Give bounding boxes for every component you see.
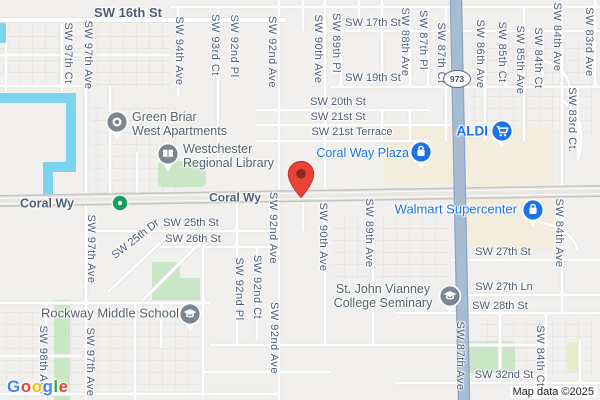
street-label-sw-93rd-ct: SW 93rd Ct	[208, 14, 220, 76]
poi-label-line: Westchester	[183, 142, 274, 156]
route-973-number: 973	[450, 74, 464, 84]
poi-label-line: Coral Way Plaza	[316, 146, 409, 160]
google-logo-letter: e	[59, 377, 69, 396]
street-label-sw-84th-ct: SW 84th Ct	[531, 27, 543, 88]
street-label-sw-85th-ave: SW 85th Ave	[513, 26, 525, 95]
street-label-sw-92nd-ct: SW 92nd Ct	[250, 255, 262, 319]
red-pin-icon	[287, 160, 315, 199]
poi-pin-westchester-regional-library[interactable]	[156, 142, 180, 177]
poi-label-st-john-vianney-college-seminary[interactable]: St. John VianneyCollege Seminary	[334, 282, 433, 310]
poi-label-walmart-supercenter[interactable]: Walmart Supercenter	[395, 203, 517, 218]
google-logo-letter: o	[32, 377, 43, 396]
poi-pin-walmart-supercenter[interactable]	[521, 198, 545, 233]
street-label-sw-20th-st: SW 20th St	[310, 97, 366, 109]
street-label-sw-97th-ave: SW 97th Ave	[83, 328, 95, 397]
poi-label-line: College Seminary	[334, 296, 433, 310]
street-label-sw-92nd-ave: SW 92nd Ave	[265, 16, 277, 88]
street-label-sw-87th-pl: SW 87th Pl	[416, 10, 428, 70]
street-label-sw-28th-st: SW 28th St	[472, 301, 528, 313]
grad-icon	[438, 284, 462, 314]
google-logo-letter: G	[7, 377, 21, 396]
poi-label-line: Regional Library	[183, 156, 274, 170]
ring-icon	[105, 110, 129, 140]
poi-label-line: West Apartments	[132, 124, 227, 138]
street-label-sw-19th-st: SW 19th St	[345, 73, 401, 85]
street-label-sw-84th-ct: SW 84th Ct	[533, 325, 545, 386]
poi-label-line: Rockway Middle School	[41, 307, 179, 322]
poi-label-green-briar-west-apartments[interactable]: Green BriarWest Apartments	[132, 110, 227, 138]
poi-pin-coral-way-plaza[interactable]	[409, 140, 433, 175]
poi-label-aldi[interactable]: ALDI	[457, 123, 489, 138]
street-label-sw-27th-st: SW 27th St	[475, 247, 531, 259]
street-label-sw-92nd-ave: SW 92nd Ave	[266, 192, 278, 264]
street-label-sw-83rd-ct-: SW 83rd Ct.	[565, 87, 577, 152]
poi-label-line: Green Briar	[132, 110, 227, 124]
map-attribution: Map data ©2025	[510, 386, 598, 398]
street-label-sw-97th-ave: SW 97th Ave	[81, 21, 93, 90]
bag-icon	[409, 140, 433, 170]
grad-icon	[178, 302, 202, 332]
street-label-sw-97th-ave: SW 97th Ave	[84, 215, 96, 284]
google-logo-letter: o	[21, 377, 32, 396]
street-label-coral-wy: Coral Wy	[209, 192, 261, 205]
map-canvas[interactable]: SW 16th StSW 17th StSW 19th StSW 20th St…	[0, 0, 600, 400]
book-icon	[156, 142, 180, 172]
street-label-sw-83rd-ave: SW 83rd Ave	[582, 7, 594, 77]
poi-pin-aldi[interactable]	[490, 119, 514, 154]
bag-icon	[521, 198, 545, 228]
street-label-sw-25th-st: SW 25th St	[163, 218, 219, 230]
poi-label-westchester-regional-library[interactable]: WestchesterRegional Library	[183, 142, 274, 170]
cart-icon	[490, 119, 514, 149]
street-label-sw-97th-ct: SW 97th Ct	[61, 22, 73, 83]
poi-label-line: Walmart Supercenter	[395, 203, 517, 218]
poi-label-rockway-middle-school[interactable]: Rockway Middle School	[41, 307, 179, 322]
poi-label-line: ALDI	[457, 123, 489, 138]
google-logo[interactable]: Google	[7, 377, 69, 397]
poi-label-line: St. John Vianney	[334, 282, 433, 296]
street-label-sw-92nd-pl: SW 92nd Pl	[227, 14, 239, 77]
poi-pin-green-briar-west-apartments[interactable]	[105, 110, 129, 145]
street-label-sw-92nd-ave: SW 92nd Ave	[267, 302, 279, 374]
street-label-sw-27th-ln: SW 27th Ln	[475, 282, 532, 294]
street-label-sw-87th-ave: SW 87th Ave	[453, 322, 465, 391]
street-label-sw-89th-ave: SW 89th Ave	[362, 199, 374, 268]
poi-pin-rockway-middle-school[interactable]	[178, 302, 202, 337]
destination-pin[interactable]	[287, 160, 315, 204]
google-logo-letter: g	[43, 377, 54, 396]
street-label-sw-92nd-pl: SW 92nd Pl	[232, 257, 244, 320]
street-label-sw-85th-ct: SW 85th Ct	[495, 21, 507, 82]
route-973-shield: 973	[443, 70, 471, 88]
dot-icon	[111, 194, 129, 217]
street-label-sw-90th-ave: SW 90th Ave	[311, 15, 323, 84]
street-label-sw-17th-st: SW 17th St	[345, 18, 401, 30]
street-label-sw-88th-ave: SW 88th Ave	[398, 8, 410, 77]
street-label-sw-26th-st: SW 26th St	[165, 234, 221, 246]
poi-pin-park-poi[interactable]	[111, 194, 129, 222]
street-label-sw-32nd-st: SW 32nd St	[475, 370, 534, 382]
street-label-sw-90th-ave: SW 90th Ave	[316, 203, 328, 272]
street-label-sw-84th-ave: SW 84th Ave	[550, 3, 562, 72]
street-label-sw-16th-st: SW 16th St	[94, 6, 162, 20]
street-label-sw-86th-ave: SW 86th Ave	[473, 20, 485, 89]
street-label-coral-wy: Coral Wy	[20, 197, 74, 210]
street-label-sw-84th-ave: SW 84th Ave	[552, 199, 564, 268]
street-label-sw-21st-st: SW 21st St	[310, 112, 365, 124]
poi-label-coral-way-plaza[interactable]: Coral Way Plaza	[316, 146, 409, 160]
street-label-sw-94th-ave: SW 94th Ave	[172, 17, 184, 86]
street-label-sw-21st-terrace: SW 21st Terrace	[311, 127, 392, 139]
street-label-sw-89th-pl: SW 89th Pl	[329, 13, 341, 73]
poi-pin-st-john-vianney-college-seminary[interactable]	[438, 284, 462, 319]
